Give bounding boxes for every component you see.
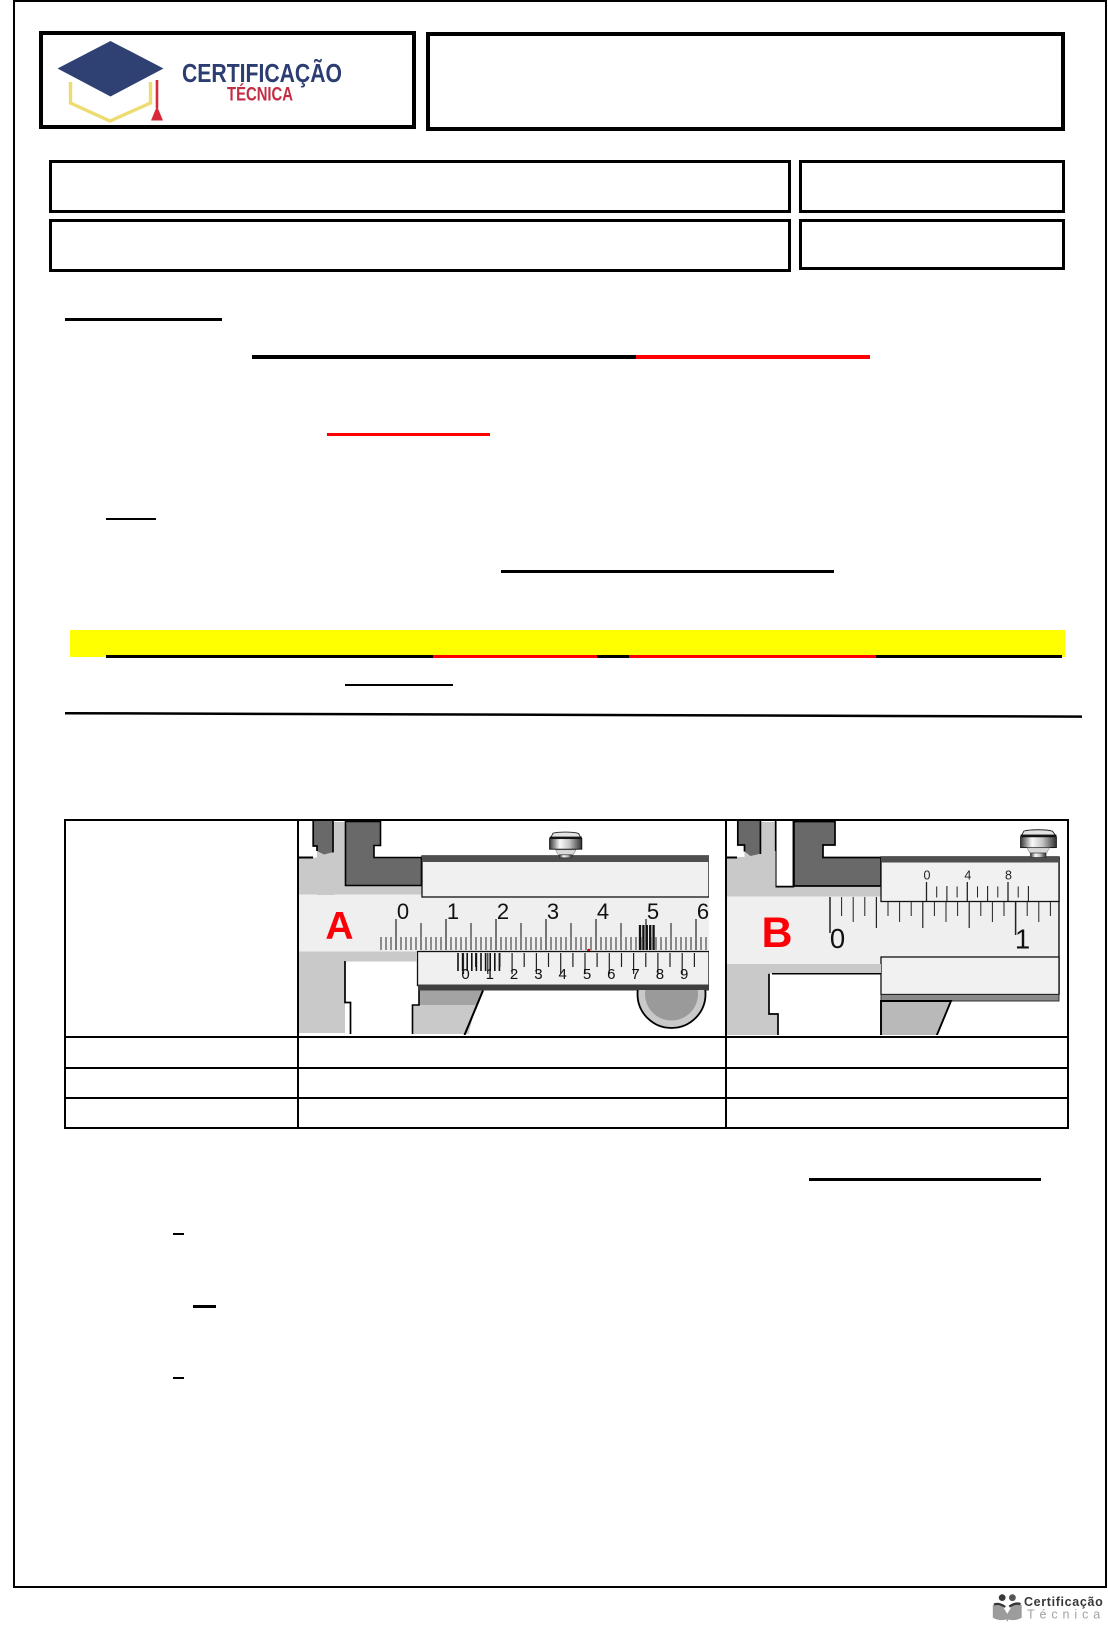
svg-text:4: 4 [964, 869, 971, 883]
svg-text:1: 1 [447, 899, 459, 924]
svg-text:0: 0 [461, 966, 469, 983]
svg-text:5: 5 [583, 966, 591, 983]
svg-text:9: 9 [680, 966, 688, 983]
svg-text:1: 1 [486, 966, 494, 983]
svg-text:6: 6 [697, 899, 709, 924]
svg-text:3: 3 [534, 966, 542, 983]
svg-text:6: 6 [607, 966, 615, 983]
svg-text:0: 0 [924, 869, 931, 883]
svg-text:7: 7 [631, 966, 639, 983]
svg-text:B: B [761, 909, 792, 957]
svg-text:0: 0 [397, 899, 409, 924]
svg-text:3: 3 [547, 899, 559, 924]
svg-text:0: 0 [830, 923, 845, 954]
svg-text:2: 2 [510, 966, 518, 983]
svg-text:4: 4 [597, 899, 609, 924]
svg-text:4: 4 [559, 966, 567, 983]
svg-text:A: A [325, 905, 353, 948]
svg-text:1: 1 [1015, 924, 1030, 955]
svg-text:2: 2 [497, 899, 509, 924]
svg-text:TÉCNICA: TÉCNICA [227, 83, 293, 106]
svg-text:5: 5 [647, 899, 659, 924]
svg-text:8: 8 [1005, 869, 1012, 883]
svg-text:Técnica: Técnica [1027, 1608, 1105, 1622]
svg-text:8: 8 [656, 966, 664, 983]
